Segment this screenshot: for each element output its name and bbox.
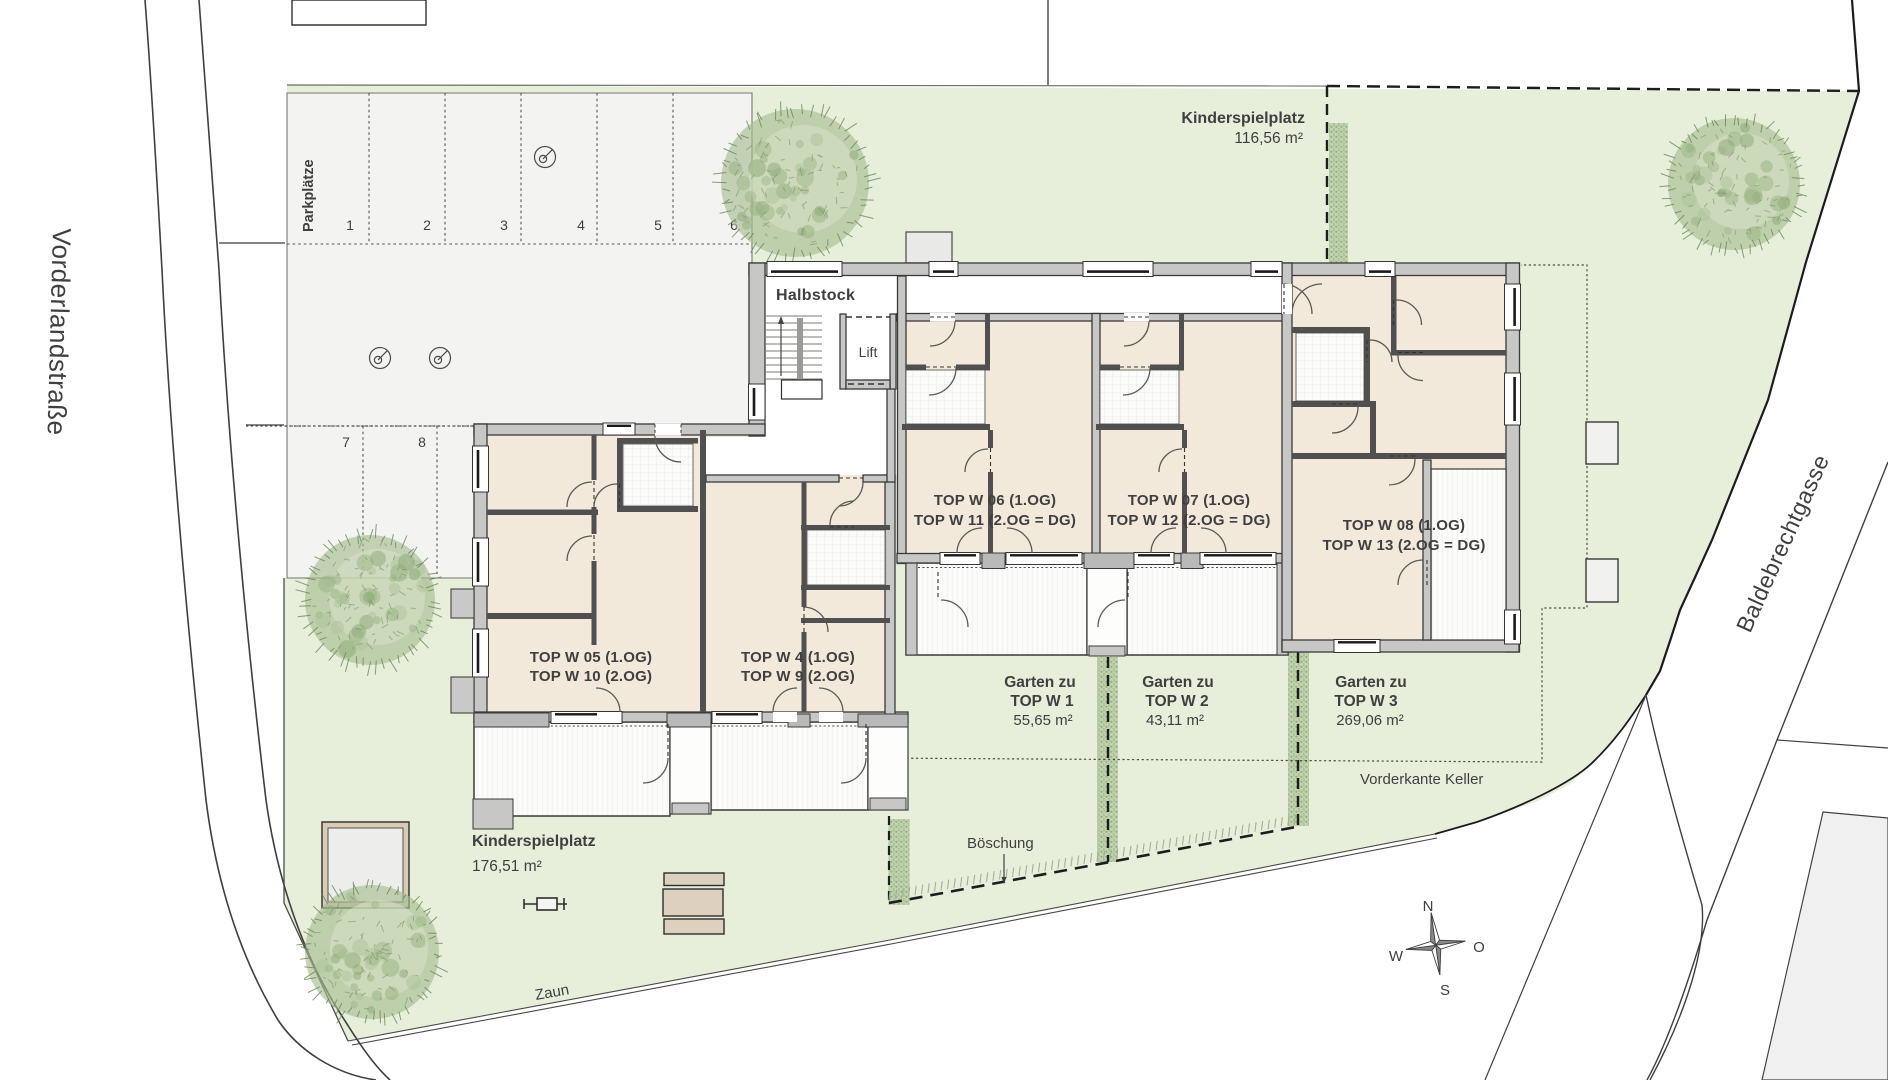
- svg-text:TOP W 9 (2.OG): TOP W 9 (2.OG): [741, 668, 855, 685]
- svg-text:Vorderkante Keller: Vorderkante Keller: [1360, 771, 1483, 788]
- svg-text:1: 1: [346, 217, 354, 233]
- svg-text:Kinderspielplatz: Kinderspielplatz: [472, 833, 596, 850]
- svg-text:2: 2: [423, 217, 431, 233]
- svg-text:W: W: [1389, 948, 1404, 965]
- svg-text:TOP W 10 (2.OG): TOP W 10 (2.OG): [530, 668, 652, 685]
- svg-text:176,51 m²: 176,51 m²: [472, 858, 542, 875]
- svg-text:269,06 m²: 269,06 m²: [1336, 712, 1404, 729]
- svg-text:Böschung: Böschung: [967, 835, 1034, 852]
- svg-text:S: S: [1440, 982, 1450, 999]
- svg-text:TOP W 07 (1.OG): TOP W 07 (1.OG): [1128, 492, 1250, 509]
- svg-text:TOP W 05 (1.OG): TOP W 05 (1.OG): [530, 649, 652, 666]
- svg-text:43,11 m²: 43,11 m²: [1146, 712, 1204, 729]
- svg-text:Parkplätze: Parkplätze: [301, 159, 317, 232]
- svg-text:Halbstock: Halbstock: [776, 287, 855, 304]
- svg-text:O: O: [1473, 939, 1485, 956]
- svg-text:TOP W 3: TOP W 3: [1334, 693, 1398, 710]
- svg-text:TOP W 4 (1.OG): TOP W 4 (1.OG): [741, 649, 855, 666]
- svg-text:TOP W 13 (2.OG = DG): TOP W 13 (2.OG = DG): [1322, 537, 1485, 554]
- svg-text:Lift: Lift: [859, 344, 878, 360]
- svg-text:TOP W 11 (2.OG = DG): TOP W 11 (2.OG = DG): [914, 512, 1076, 529]
- svg-text:116,56 m²: 116,56 m²: [1234, 130, 1303, 147]
- svg-text:Garten zu: Garten zu: [1004, 674, 1075, 691]
- svg-text:3: 3: [500, 217, 508, 233]
- svg-text:TOP W 12 (2.OG = DG): TOP W 12 (2.OG = DG): [1107, 512, 1270, 529]
- svg-text:7: 7: [342, 434, 350, 450]
- svg-text:Vorderlandstraße: Vorderlandstraße: [42, 228, 77, 436]
- svg-text:N: N: [1423, 898, 1434, 915]
- svg-text:TOP W 08 (1.OG): TOP W 08 (1.OG): [1343, 517, 1465, 534]
- svg-text:Garten zu: Garten zu: [1142, 674, 1213, 691]
- svg-text:TOP W 1: TOP W 1: [1010, 693, 1074, 710]
- svg-text:TOP W 2: TOP W 2: [1145, 693, 1208, 710]
- svg-text:Garten zu: Garten zu: [1335, 674, 1406, 691]
- svg-text:5: 5: [654, 217, 662, 233]
- svg-text:55,65 m²: 55,65 m²: [1013, 712, 1072, 729]
- svg-text:8: 8: [418, 434, 426, 450]
- svg-text:4: 4: [577, 217, 585, 233]
- svg-text:TOP W 06 (1.OG): TOP W 06 (1.OG): [934, 492, 1056, 509]
- svg-text:Kinderspielplatz: Kinderspielplatz: [1181, 110, 1305, 127]
